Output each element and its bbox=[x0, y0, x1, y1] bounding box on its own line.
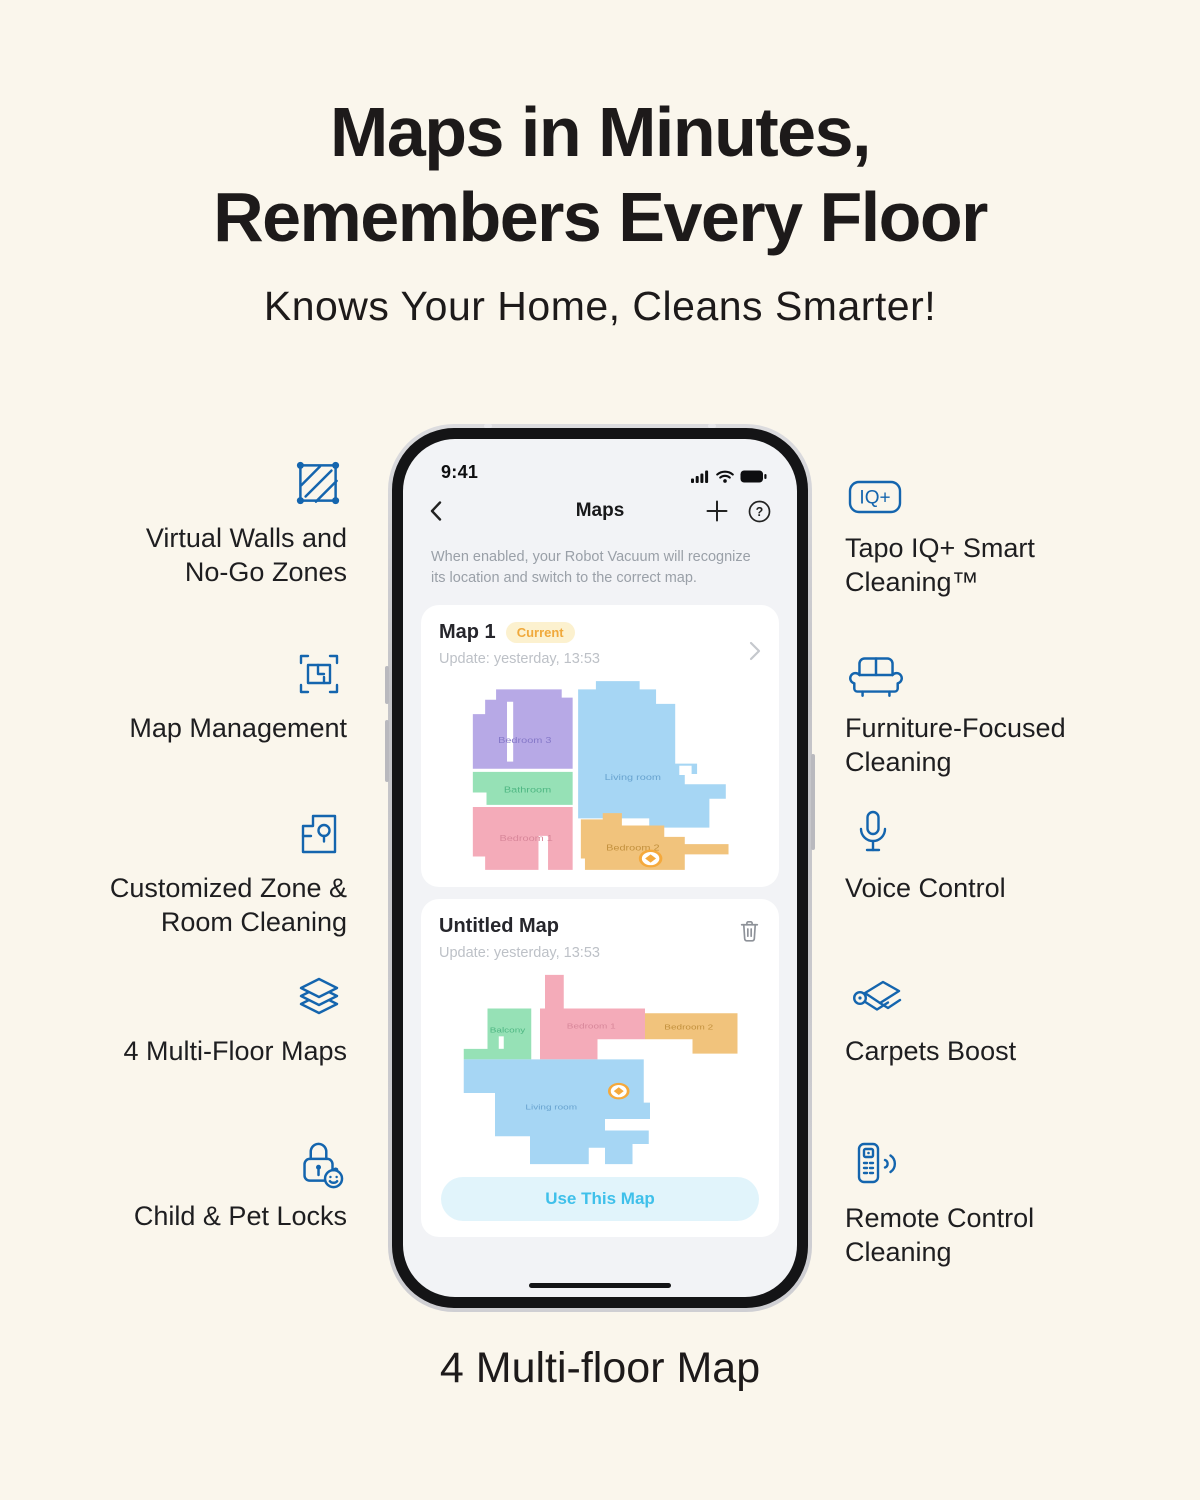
feature-label: Voice Control bbox=[845, 871, 1120, 905]
volume-up-button bbox=[385, 666, 389, 704]
svg-text:?: ? bbox=[756, 505, 764, 519]
use-this-map-button[interactable]: Use This Map bbox=[441, 1177, 759, 1221]
room-label: Bedroom 1 bbox=[567, 1022, 616, 1031]
phone-screen: 9:41 bbox=[403, 439, 797, 1297]
room-label: Balcony bbox=[490, 1026, 526, 1035]
feature-label: Customized Zone & Room Cleaning bbox=[72, 871, 347, 939]
wifi-icon bbox=[716, 470, 734, 483]
microphone-icon bbox=[845, 804, 901, 862]
bottom-caption: 4 Multi-floor Map bbox=[0, 1344, 1200, 1393]
feature-carpets-boost: Carpets Boost bbox=[845, 963, 1120, 1068]
feature-label: Furniture-Focused Cleaning bbox=[845, 711, 1120, 779]
feature-label: Remote Control Cleaning bbox=[845, 1201, 1120, 1269]
room-bedroom-1 bbox=[540, 975, 645, 1060]
title-line-1: Maps in Minutes, bbox=[330, 93, 870, 171]
map-name: Map 1 bbox=[439, 621, 496, 644]
current-badge: Current bbox=[506, 622, 575, 643]
feature-remote-control: Remote Control Cleaning bbox=[845, 1130, 1120, 1269]
battery-icon bbox=[740, 470, 767, 483]
map-update-time: Update: yesterday, 13:53 bbox=[439, 651, 761, 667]
status-bar: 9:41 bbox=[403, 439, 797, 487]
delete-map-icon[interactable] bbox=[738, 919, 761, 943]
help-icon[interactable]: ? bbox=[748, 500, 771, 523]
feature-label: Child & Pet Locks bbox=[72, 1199, 347, 1233]
iq-badge-icon: IQ+ bbox=[845, 472, 905, 522]
sofa-icon bbox=[845, 646, 907, 702]
map-name: Untitled Map bbox=[439, 915, 559, 938]
feature-furniture-cleaning: Furniture-Focused Cleaning bbox=[845, 640, 1120, 779]
room-label: Bathroom bbox=[504, 786, 551, 795]
page-title: Maps in Minutes, Remembers Every Floor bbox=[0, 90, 1200, 259]
feature-child-pet-locks: Child & Pet Locks bbox=[72, 1128, 347, 1233]
volume-down-button bbox=[385, 720, 389, 782]
room-label: Bedroom 2 bbox=[664, 1023, 713, 1032]
feature-label: Virtual Walls and No-Go Zones bbox=[72, 521, 347, 589]
title-line-2: Remembers Every Floor bbox=[213, 178, 987, 256]
phone-bezel: 9:41 bbox=[392, 428, 808, 1308]
no-go-zone-icon bbox=[289, 454, 347, 512]
feature-multi-floor-maps: 4 Multi-Floor Maps bbox=[72, 963, 347, 1068]
room-label: Bedroom 1 bbox=[499, 834, 552, 843]
feature-label: 4 Multi-Floor Maps bbox=[72, 1034, 347, 1068]
dock-marker bbox=[640, 851, 661, 866]
status-time: 9:41 bbox=[441, 462, 478, 483]
room-living-room bbox=[578, 681, 726, 827]
feature-iq-smart-cleaning: IQ+ Tapo IQ+ Smart Cleaning™ bbox=[845, 460, 1120, 599]
cellular-signal-icon bbox=[691, 470, 710, 483]
room-label: Bedroom 3 bbox=[498, 736, 551, 745]
feature-label: Tapo IQ+ Smart Cleaning™ bbox=[845, 531, 1120, 599]
room-bedroom-3 bbox=[473, 689, 573, 768]
map-card-2[interactable]: Untitled Map Update: yesterday, 13:53 bbox=[421, 899, 779, 1237]
room-label: Living room bbox=[525, 1102, 577, 1111]
add-map-icon[interactable] bbox=[706, 500, 728, 522]
multi-floor-icon bbox=[291, 969, 347, 1025]
child-pet-lock-icon bbox=[289, 1132, 347, 1190]
dock-marker bbox=[609, 1084, 628, 1098]
home-indicator[interactable] bbox=[529, 1283, 671, 1288]
map-management-icon bbox=[291, 646, 347, 702]
room-living-room bbox=[464, 1059, 650, 1164]
room-label: Living room bbox=[605, 773, 661, 782]
feature-label: Map Management bbox=[72, 711, 347, 745]
feature-voice-control: Voice Control bbox=[845, 800, 1120, 905]
feature-map-management: Map Management bbox=[72, 640, 347, 745]
maps-description: When enabled, your Robot Vacuum will rec… bbox=[403, 535, 797, 591]
zone-cleaning-icon bbox=[291, 806, 347, 862]
map-card-1[interactable]: Map 1 Current Update: yesterday, 13:53 bbox=[421, 605, 779, 887]
floor-plan-map-2: Balcony Bedroom 1 Bedroom 2 Living room bbox=[460, 971, 740, 1167]
floor-plan-map-1: Bedroom 3 Living room Bathroom Bedroom 1… bbox=[466, 677, 734, 873]
feature-virtual-walls: Virtual Walls and No-Go Zones bbox=[72, 450, 347, 589]
phone-mockup: 9:41 bbox=[388, 424, 812, 1312]
map-update-time: Update: yesterday, 13:53 bbox=[439, 945, 761, 961]
hero-section: Maps in Minutes, Remembers Every Floor K… bbox=[0, 90, 1200, 330]
feature-label: Carpets Boost bbox=[845, 1034, 1120, 1068]
feature-zone-cleaning: Customized Zone & Room Cleaning bbox=[72, 800, 347, 939]
room-bedroom-2 bbox=[645, 1013, 738, 1053]
page-subtitle: Knows Your Home, Cleans Smarter! bbox=[0, 283, 1200, 330]
carpet-icon bbox=[845, 969, 905, 1025]
chevron-right-icon[interactable] bbox=[749, 641, 761, 661]
power-button bbox=[811, 754, 815, 850]
remote-control-icon bbox=[845, 1136, 905, 1192]
nav-bar: Maps ? bbox=[403, 487, 797, 535]
iq-badge-label: IQ+ bbox=[859, 488, 890, 509]
